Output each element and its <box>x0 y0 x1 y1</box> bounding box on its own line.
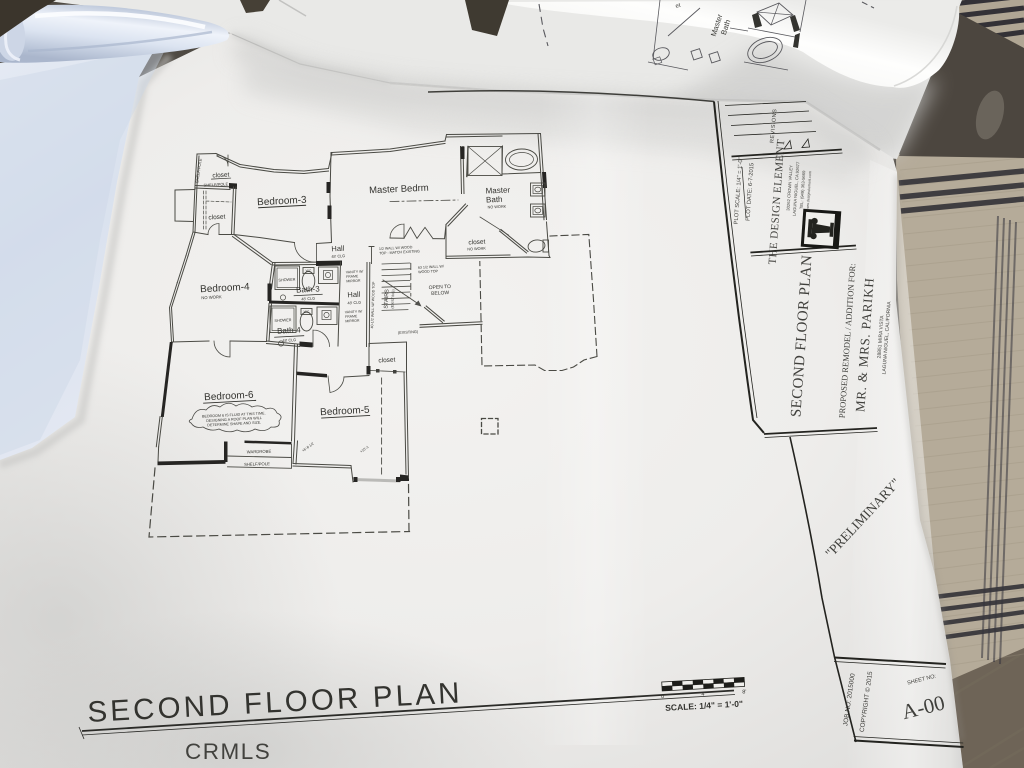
svg-text:MIRROR: MIRROR <box>346 279 361 284</box>
svg-text:closet: closet <box>378 357 396 365</box>
svg-text:4': 4' <box>701 692 705 698</box>
svg-text:WC: WC <box>306 269 312 273</box>
svg-text:Hall: Hall <box>331 244 345 254</box>
svg-text:WC: WC <box>304 310 310 314</box>
svg-text:8': 8' <box>742 689 746 695</box>
svg-text:STAIRS: STAIRS <box>383 289 390 309</box>
svg-text:CRMLS: CRMLS <box>185 739 271 764</box>
svg-text:closet: closet <box>208 214 226 222</box>
svg-text:Bath-3: Bath-3 <box>296 284 321 294</box>
svg-text:Bath: Bath <box>486 195 503 205</box>
svg-text:WARDROBE: WARDROBE <box>247 449 272 455</box>
svg-text:SHELF/POLE: SHELF/POLE <box>244 461 270 467</box>
svg-text:BELOW: BELOW <box>431 290 450 297</box>
svg-text:NO WORK: NO WORK <box>488 205 507 210</box>
svg-text:Bath-4: Bath-4 <box>277 325 302 335</box>
svg-text:closet: closet <box>468 239 486 247</box>
svg-text:48' CLG: 48' CLG <box>331 254 345 259</box>
svg-text:MIRROR: MIRROR <box>345 319 360 324</box>
svg-text:48' CLG: 48' CLG <box>347 301 361 306</box>
svg-text:0: 0 <box>661 694 664 700</box>
svg-text:48' CLG: 48' CLG <box>282 338 296 343</box>
svg-text:48' CLG: 48' CLG <box>301 297 315 302</box>
svg-text:Hall: Hall <box>347 290 361 300</box>
